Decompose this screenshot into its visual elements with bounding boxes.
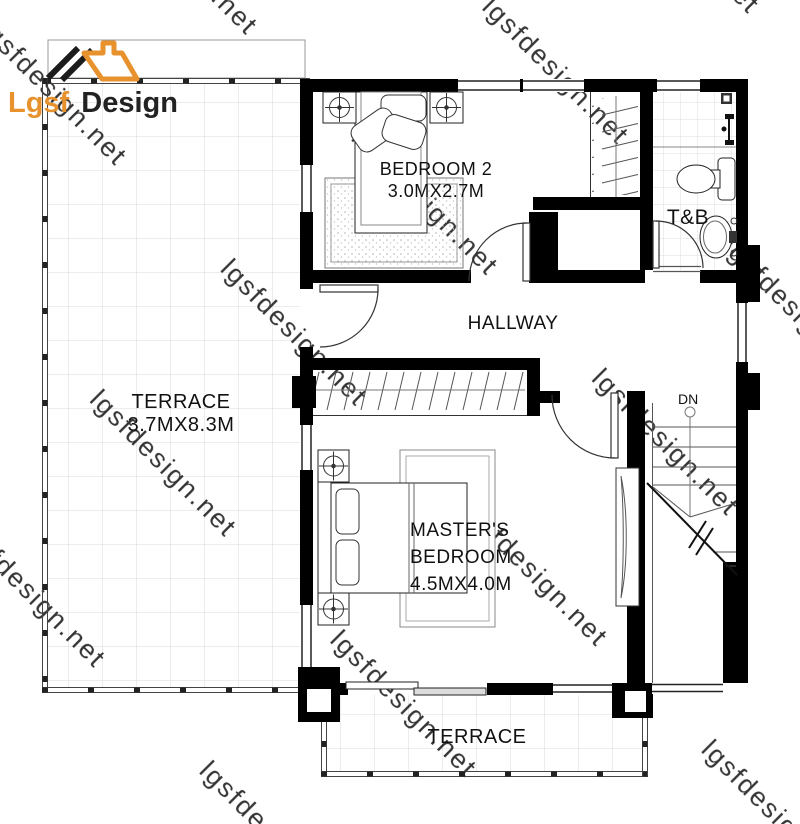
- nightstand: [430, 92, 463, 123]
- closet-hallway: [313, 370, 527, 416]
- stairs-down-label: DN: [678, 391, 698, 407]
- window: [300, 425, 313, 470]
- closet-bedroom2: [591, 92, 639, 197]
- master-bedroom-dims: 4.5MX4.0M: [410, 574, 512, 595]
- lamp-icon: [331, 607, 336, 612]
- window: [652, 683, 723, 694]
- nightstand: [318, 593, 349, 625]
- bedroom2-dims: 3.0MX2.7M: [388, 181, 485, 201]
- floor-plan-page: lgsfdesign.net: [0, 0, 800, 824]
- hallway-label: HALLWAY: [468, 313, 559, 334]
- toilet-bath-label: T&B: [667, 206, 709, 229]
- window: [553, 683, 612, 695]
- terrace-left-dims: 3.7MX8.3M: [128, 414, 235, 436]
- shower-drain-icon: [721, 93, 732, 104]
- lamp-icon: [337, 105, 342, 110]
- logo-brand: Lgsf: [8, 87, 70, 119]
- window: [455, 79, 587, 92]
- window: [300, 162, 313, 215]
- master-bedroom-label-1: MASTER'S: [410, 520, 509, 541]
- nightstand: [318, 450, 349, 482]
- bedroom2-furniture: [323, 92, 463, 268]
- window: [736, 303, 748, 362]
- pillow: [336, 540, 359, 585]
- logo-text: Lgsf Design: [8, 87, 178, 119]
- terrace-bottom-label: TERRACE: [427, 726, 526, 748]
- window: [657, 79, 700, 92]
- bedroom2-label: BEDROOM 2: [380, 159, 493, 179]
- pillow: [336, 489, 359, 534]
- logo-brand2: Design: [81, 87, 178, 119]
- column: [298, 667, 340, 722]
- lamp-icon: [444, 105, 449, 110]
- tv-cabinet: [616, 468, 639, 606]
- nightstand: [323, 92, 356, 123]
- master-bedroom-label-2: BEDROOM: [410, 547, 512, 568]
- floor-plan-drawing: lgsfdesign.net: [0, 0, 800, 824]
- column: [612, 683, 653, 718]
- window: [300, 605, 313, 667]
- terrace-left-label: TERRACE: [131, 391, 230, 413]
- lamp-icon: [331, 464, 336, 469]
